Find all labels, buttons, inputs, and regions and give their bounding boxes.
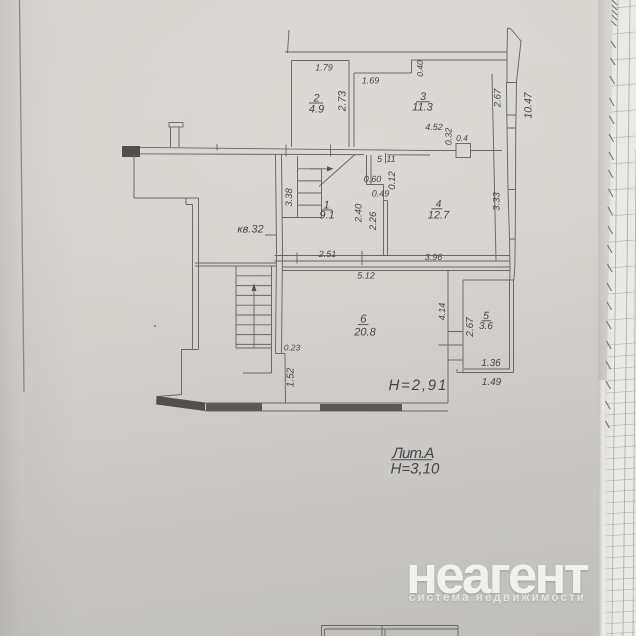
- svg-text:1.36: 1.36: [481, 358, 501, 369]
- svg-text:3.6: 3.6: [479, 321, 493, 332]
- svg-text:1.79: 1.79: [315, 63, 333, 73]
- svg-text:9.1: 9.1: [319, 210, 334, 222]
- svg-text:20.8: 20.8: [353, 327, 376, 339]
- svg-text:1.52: 1.52: [286, 367, 297, 387]
- svg-text:5.12: 5.12: [357, 271, 375, 281]
- svg-text:4.9: 4.9: [309, 104, 324, 116]
- svg-text:2.40: 2.40: [354, 203, 365, 223]
- svg-text:12.7: 12.7: [428, 210, 450, 222]
- svg-text:Н=3,10: Н=3,10: [391, 461, 440, 478]
- svg-text:10.47: 10.47: [523, 91, 535, 118]
- svg-text:H=2,91: H=2,91: [389, 377, 449, 394]
- svg-text:0.4: 0.4: [456, 133, 468, 143]
- svg-text:11.3: 11.3: [412, 102, 433, 114]
- svg-text:0.23: 0.23: [284, 343, 301, 353]
- svg-text:2.67: 2.67: [493, 88, 504, 108]
- svg-text:11: 11: [386, 154, 395, 164]
- svg-text:0.60: 0.60: [364, 174, 382, 184]
- svg-text:2.67: 2.67: [465, 317, 476, 338]
- svg-text:0.12: 0.12: [387, 171, 398, 190]
- svg-text:1.69: 1.69: [362, 76, 380, 86]
- svg-text:2.51: 2.51: [318, 249, 337, 259]
- svg-text:4.14: 4.14: [437, 303, 447, 321]
- svg-text:6: 6: [360, 314, 367, 326]
- svg-text:0.49: 0.49: [372, 189, 390, 199]
- svg-text:4.52: 4.52: [425, 122, 443, 132]
- svg-text:3.33: 3.33: [492, 192, 503, 211]
- svg-text:5: 5: [377, 154, 383, 164]
- svg-text:2.73: 2.73: [337, 91, 349, 113]
- svg-text:0.40: 0.40: [415, 60, 425, 77]
- svg-text:кв.32: кв.32: [237, 224, 263, 236]
- svg-text:3.96: 3.96: [425, 252, 443, 262]
- svg-text:1.49: 1.49: [482, 377, 502, 388]
- svg-text:3.38: 3.38: [284, 188, 295, 207]
- svg-text:0.32: 0.32: [444, 128, 454, 146]
- svg-text:2.26: 2.26: [368, 211, 379, 231]
